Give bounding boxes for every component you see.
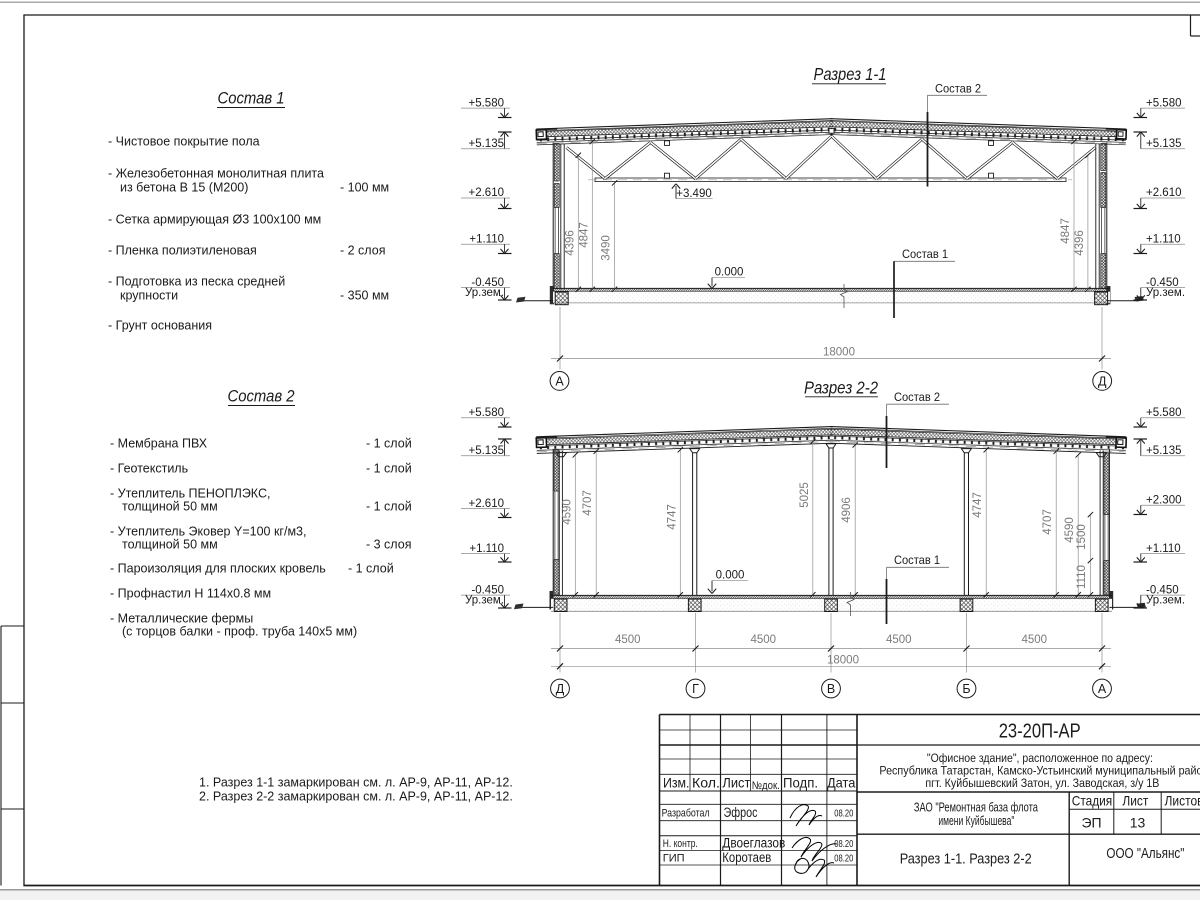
svg-text:+5.135: +5.135 — [1146, 138, 1182, 150]
svg-text:23-20П-АР: 23-20П-АР — [999, 719, 1081, 742]
svg-text:из бетона В 15 (М200): из бетона В 15 (М200) — [120, 181, 248, 195]
svg-text:Лист: Лист — [722, 775, 751, 791]
svg-text:Ур.зем.: Ур.зем. — [465, 287, 504, 299]
svg-text:4396: 4396 — [564, 230, 576, 256]
svg-text:Д: Д — [1098, 374, 1107, 388]
svg-text:+5.580: +5.580 — [1146, 97, 1182, 109]
svg-text:ГИП: ГИП — [663, 853, 685, 865]
svg-text:Д: Д — [556, 682, 565, 696]
svg-text:пгт. Куйбышевский Затон, ул. З: пгт. Куйбышевский Затон, ул. Заводская, … — [925, 776, 1159, 790]
svg-text:+1.110: +1.110 — [1146, 543, 1181, 555]
svg-text:4847: 4847 — [578, 222, 590, 248]
svg-text:Дата: Дата — [827, 775, 856, 791]
svg-text:+5.135: +5.135 — [1146, 445, 1182, 457]
svg-text:Лист: Лист — [1122, 793, 1149, 809]
svg-text:18000: 18000 — [827, 654, 859, 666]
svg-text:4707: 4707 — [1042, 509, 1054, 535]
svg-text:Н. контр.: Н. контр. — [663, 838, 698, 850]
svg-text:Состав 1: Состав 1 — [218, 90, 285, 108]
svg-text:- 1 слой: - 1 слой — [366, 462, 412, 476]
svg-text:- Грунт основания: - Грунт основания — [108, 319, 212, 333]
svg-text:- 2 слоя: - 2 слоя — [340, 244, 385, 258]
svg-text:4590: 4590 — [561, 499, 573, 525]
svg-text:- Профнастил Н 114х0.8 мм: - Профнастил Н 114х0.8 мм — [110, 587, 271, 601]
svg-text:4396: 4396 — [1074, 230, 1086, 256]
svg-text:Изм.: Изм. — [663, 775, 690, 791]
svg-text:А: А — [1098, 682, 1107, 696]
svg-text:ООО "Альянс": ООО "Альянс" — [1106, 846, 1184, 862]
svg-text:+5.580: +5.580 — [469, 97, 505, 109]
svg-text:Двоеглазов: Двоеглазов — [722, 836, 785, 851]
svg-text:+5.580: +5.580 — [469, 407, 505, 419]
svg-text:08.20: 08.20 — [834, 838, 853, 850]
svg-text:Листов: Листов — [1165, 793, 1200, 809]
svg-text:4747: 4747 — [666, 504, 678, 530]
svg-text:4707: 4707 — [582, 490, 594, 516]
svg-text:+1.110: +1.110 — [1146, 234, 1181, 246]
svg-text:Ур.зем.: Ур.зем. — [1146, 287, 1185, 299]
svg-text:4747: 4747 — [972, 492, 984, 518]
svg-text:5025: 5025 — [799, 482, 811, 508]
svg-text:Подп.: Подп. — [783, 775, 818, 791]
svg-text:- Мембрана ПВХ: - Мембрана ПВХ — [110, 437, 208, 451]
svg-text:1110: 1110 — [1076, 565, 1088, 589]
svg-text:№док.: №док. — [752, 780, 780, 792]
svg-text:- Сетка армирующая Ø3 100х100: - Сетка армирующая Ø3 100х100 мм — [108, 213, 321, 227]
svg-text:Г: Г — [692, 682, 699, 696]
svg-text:- Утеплитель ПЕНОПЛЭКС,: - Утеплитель ПЕНОПЛЭКС, — [110, 487, 270, 501]
svg-text:2. Разрез 2-2 замаркирован см.: 2. Разрез 2-2 замаркирован см. л. АР-9, … — [199, 790, 513, 804]
svg-text:ЭП: ЭП — [1081, 815, 1101, 831]
svg-text:- Пленка полиэтиленовая: - Пленка полиэтиленовая — [108, 244, 257, 258]
svg-text:1. Разрез 1-1 замаркирован см.: 1. Разрез 1-1 замаркирован см. л. АР-9, … — [199, 776, 513, 790]
svg-text:+2.300: +2.300 — [1146, 495, 1182, 507]
svg-text:0.000: 0.000 — [715, 267, 744, 279]
svg-text:- 3 слоя: - 3 слоя — [366, 538, 411, 552]
svg-text:имени Куйбышева": имени Куйбышева" — [938, 814, 1014, 828]
svg-text:Разрез 1-1: Разрез 1-1 — [814, 64, 887, 84]
svg-text:- Чистовое покрытие пола: - Чистовое покрытие пола — [108, 135, 260, 149]
svg-text:Эфрос: Эфрос — [724, 805, 758, 820]
svg-text:+1.110: +1.110 — [469, 543, 504, 555]
svg-text:Разрез 1-1. Разрез 2-2: Разрез 1-1. Разрез 2-2 — [900, 851, 1032, 868]
svg-text:толщиной 50 мм: толщиной 50 мм — [122, 538, 218, 552]
svg-text:ЗАО "Ремонтная база флота: ЗАО "Ремонтная база флота — [914, 801, 1038, 815]
svg-text:- Металлические фермы: - Металлические фермы — [110, 612, 253, 626]
svg-text:+3.490: +3.490 — [676, 188, 712, 200]
svg-text:- 350 мм: - 350 мм — [340, 289, 389, 303]
svg-text:Ур.зем.: Ур.зем. — [465, 594, 504, 606]
svg-text:4500: 4500 — [886, 634, 912, 646]
svg-text:Ур.зем.: Ур.зем. — [1146, 594, 1185, 606]
svg-text:+2.610: +2.610 — [469, 498, 505, 510]
svg-text:Состав 1: Состав 1 — [894, 553, 940, 567]
svg-text:Б: Б — [962, 682, 970, 696]
svg-text:08.20: 08.20 — [834, 808, 853, 820]
svg-text:4500: 4500 — [751, 634, 777, 646]
svg-text:- 100 мм: - 100 мм — [340, 181, 389, 195]
svg-text:- 1 слой: - 1 слой — [366, 500, 412, 514]
svg-text:08.20: 08.20 — [834, 853, 853, 865]
svg-text:- Подготовка из песка средней: - Подготовка из песка средней — [108, 275, 285, 289]
svg-text:толщиной 50 мм: толщиной 50 мм — [122, 500, 218, 514]
svg-text:1500: 1500 — [1076, 524, 1088, 550]
svg-text:(с торцов балки - проф. труба: (с торцов балки - проф. труба 140х5 мм) — [122, 625, 357, 639]
svg-text:3490: 3490 — [601, 235, 613, 261]
svg-text:Состав 2: Состав 2 — [228, 388, 295, 406]
svg-text:+5.580: +5.580 — [1146, 407, 1182, 419]
svg-text:4500: 4500 — [1022, 634, 1048, 646]
svg-text:0.000: 0.000 — [716, 570, 745, 582]
svg-text:+5.135: +5.135 — [469, 445, 505, 457]
svg-text:13: 13 — [1130, 815, 1146, 831]
svg-text:В: В — [827, 682, 835, 696]
svg-text:- Геотекстиль: - Геотекстиль — [110, 462, 188, 476]
svg-text:- Пароизоляция для плоских кро: - Пароизоляция для плоских кровель — [110, 562, 326, 576]
svg-text:Состав 2: Состав 2 — [894, 390, 940, 404]
svg-text:4906: 4906 — [841, 497, 853, 523]
svg-text:4847: 4847 — [1060, 218, 1072, 244]
svg-text:крупности: крупности — [120, 289, 178, 303]
svg-text:Разрез 2-2: Разрез 2-2 — [804, 378, 878, 398]
svg-text:А: А — [555, 374, 564, 388]
svg-text:Коротаев: Коротаев — [722, 850, 771, 865]
svg-text:Стадия: Стадия — [1072, 793, 1113, 809]
svg-text:4590: 4590 — [1064, 517, 1076, 543]
svg-text:+2.610: +2.610 — [1146, 187, 1182, 199]
svg-text:- 1 слой: - 1 слой — [366, 437, 412, 451]
svg-text:- Железобетонная монолитная п: - Железобетонная монолитная плита — [108, 167, 324, 181]
svg-text:Разработал: Разработал — [662, 808, 710, 820]
svg-text:Состав 1: Состав 1 — [902, 247, 948, 261]
svg-text:18000: 18000 — [823, 347, 855, 359]
svg-text:- 1 слой: - 1 слой — [348, 562, 394, 576]
svg-text:+2.610: +2.610 — [469, 187, 505, 199]
svg-text:+1.110: +1.110 — [469, 234, 504, 246]
svg-text:4500: 4500 — [615, 634, 641, 646]
svg-text:Кол.: Кол. — [692, 775, 720, 791]
svg-text:- Утеплитель Эковер Y=100 кг/м: - Утеплитель Эковер Y=100 кг/м3, — [110, 525, 306, 539]
svg-text:+5.135: +5.135 — [469, 138, 505, 150]
svg-text:Состав 2: Состав 2 — [935, 82, 981, 96]
